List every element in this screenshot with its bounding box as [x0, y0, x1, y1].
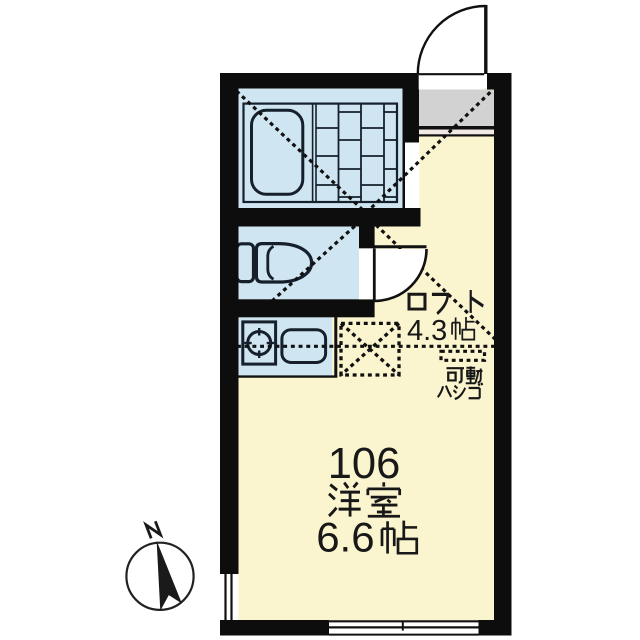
svg-text:6.6: 6.6	[316, 514, 374, 561]
svg-text:106: 106	[328, 440, 401, 488]
svg-text:4.3: 4.3	[407, 315, 447, 347]
